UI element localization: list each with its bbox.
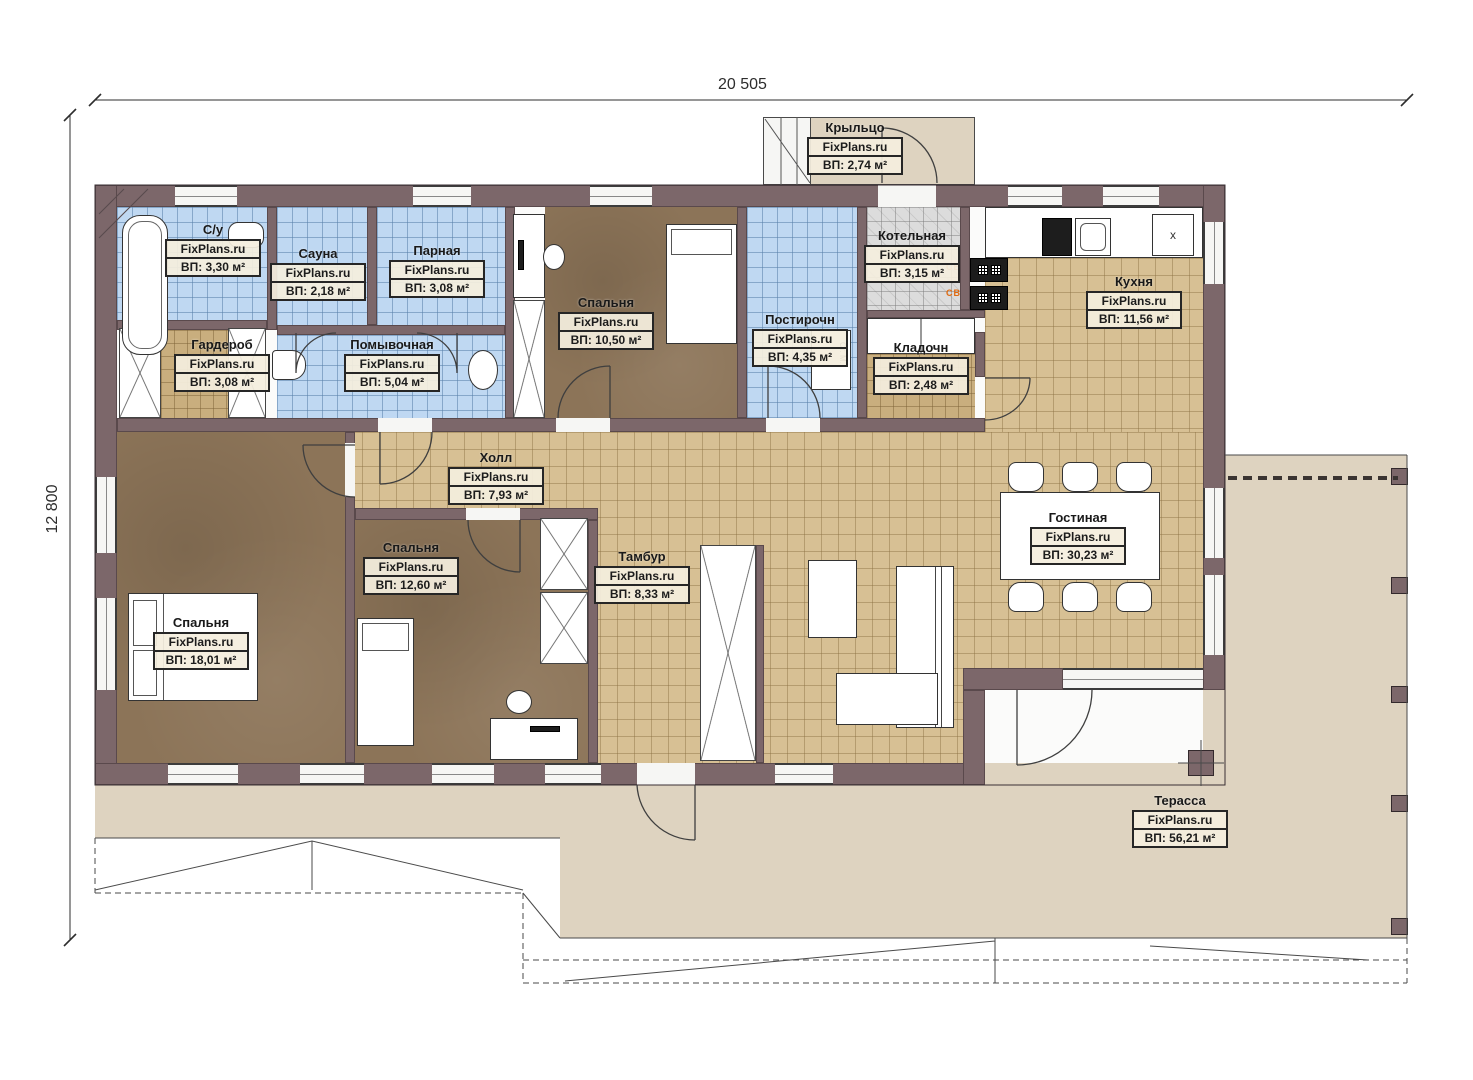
window-top-5 xyxy=(1103,185,1159,207)
wall-boiler-bottom xyxy=(867,310,985,318)
watermark: FixPlans.ru xyxy=(176,356,268,374)
dining-chair-4 xyxy=(1008,582,1044,612)
window-bottom-1 xyxy=(168,763,238,785)
floor-plan: Ст. М. СВ СВ x xyxy=(0,0,1473,1080)
room-name: Кладочн xyxy=(894,340,949,355)
terrace-post-1 xyxy=(1391,468,1408,485)
room-name: Холл xyxy=(480,450,513,465)
room-name: Гардероб xyxy=(191,337,252,352)
watermark: FixPlans.ru xyxy=(155,634,247,652)
window-bottom-4 xyxy=(545,763,601,785)
stove-burners-1 xyxy=(970,258,1008,282)
dining-chair-3 xyxy=(1116,462,1152,492)
room-label-tambur: Тамбур FixPlans.ru ВП: 8,33 м² xyxy=(582,549,702,604)
window-right-2 xyxy=(1203,488,1225,558)
watermark: FixPlans.ru xyxy=(809,139,901,157)
room-label-kholl: Холл FixPlans.ru ВП: 7,93 м² xyxy=(436,450,556,505)
room-label-parnaya: Парная FixPlans.ru ВП: 3,08 м² xyxy=(377,243,497,298)
watermark: FixPlans.ru xyxy=(875,359,967,377)
terrace-column xyxy=(1188,750,1214,776)
terrace-sliding-door xyxy=(1063,668,1203,690)
watermark: FixPlans.ru xyxy=(1032,529,1124,547)
room-name: Парная xyxy=(413,243,460,258)
room-label-kryltso: Крыльцо FixPlans.ru ВП: 2,74 м² xyxy=(795,120,915,175)
room-label-gostinaya: Гостиная FixPlans.ru ВП: 30,23 м² xyxy=(1018,510,1138,565)
terrace-post-5 xyxy=(1391,918,1408,935)
room-info-box: FixPlans.ru ВП: 2,48 м² xyxy=(873,357,969,395)
room-name: Помывочная xyxy=(350,337,433,352)
bedroom2-pillow xyxy=(362,623,409,651)
terrace-post-4 xyxy=(1391,795,1408,812)
window-top-1 xyxy=(175,185,237,207)
room-label-garderob: Гардероб FixPlans.ru ВП: 3,08 м² xyxy=(162,337,282,392)
terrace-post-2 xyxy=(1391,577,1408,594)
room-name: Спальня xyxy=(173,615,229,630)
tambur-closet xyxy=(700,545,756,761)
watermark: FixPlans.ru xyxy=(365,559,457,577)
bedroom2-closet-1 xyxy=(540,518,588,590)
room-info-box: FixPlans.ru ВП: 10,50 м² xyxy=(558,312,654,350)
room-area: ВП: 3,30 м² xyxy=(167,259,259,275)
room-label-spalnya-3: Спальня FixPlans.ru ВП: 18,01 м² xyxy=(141,615,261,670)
kitchen-sink-basin xyxy=(1080,223,1106,251)
room-info-box: FixPlans.ru ВП: 18,01 м² xyxy=(153,632,249,670)
coffee-table xyxy=(808,560,857,638)
room-name: Постирочн xyxy=(765,312,835,327)
room-area: ВП: 2,18 м² xyxy=(272,283,364,299)
window-left-1 xyxy=(95,477,117,553)
watermark: FixPlans.ru xyxy=(391,262,483,280)
watermark: FixPlans.ru xyxy=(450,469,542,487)
watermark: FixPlans.ru xyxy=(167,241,259,259)
dining-chair-5 xyxy=(1062,582,1098,612)
terrace-apron-left xyxy=(95,785,985,838)
wall-wet-row xyxy=(277,325,505,335)
room-info-box: FixPlans.ru ВП: 3,30 м² xyxy=(165,239,261,277)
room-area: ВП: 7,93 м² xyxy=(450,487,542,503)
bedroom2-desk xyxy=(490,718,578,760)
entrance-door-opening xyxy=(878,185,936,207)
room-info-box: FixPlans.ru ВП: 2,74 м² xyxy=(807,137,903,175)
window-top-3 xyxy=(590,185,652,207)
room-area: ВП: 12,60 м² xyxy=(365,577,457,593)
watermark: FixPlans.ru xyxy=(1134,812,1226,830)
room-info-box: FixPlans.ru ВП: 4,35 м² xyxy=(752,329,848,367)
dining-chair-6 xyxy=(1116,582,1152,612)
bedroom1-closet xyxy=(513,300,545,418)
room-area: ВП: 3,08 м² xyxy=(391,280,483,296)
room-info-box: FixPlans.ru ВП: 56,21 м² xyxy=(1132,810,1228,848)
room-info-box: FixPlans.ru ВП: 3,08 м² xyxy=(389,260,485,298)
room-label-kukhnya: Кухня FixPlans.ru ВП: 11,56 м² xyxy=(1074,274,1194,329)
room-area: ВП: 4,35 м² xyxy=(754,349,846,365)
bedroom1-chair xyxy=(543,244,565,270)
bedroom3-door-opening xyxy=(345,443,355,497)
room-info-box: FixPlans.ru ВП: 30,23 м² xyxy=(1030,527,1126,565)
room-area: ВП: 18,01 м² xyxy=(155,652,247,668)
terrace-apron-bottom xyxy=(560,838,985,938)
bedroom2-monitor xyxy=(530,726,560,732)
window-right-1 xyxy=(1203,222,1225,284)
watermark: FixPlans.ru xyxy=(1088,293,1180,311)
room-name: Котельная xyxy=(878,228,946,243)
room-info-box: FixPlans.ru ВП: 2,18 м² xyxy=(270,263,366,301)
room-area: ВП: 2,74 м² xyxy=(809,157,901,173)
room-name: Терасса xyxy=(1154,793,1206,808)
window-top-4 xyxy=(1008,185,1062,207)
sofa-seat xyxy=(836,673,938,725)
room-name: Спальня xyxy=(383,540,439,555)
room-name: Спальня xyxy=(578,295,634,310)
room-info-box: FixPlans.ru ВП: 11,56 м² xyxy=(1086,291,1182,329)
room-name: Гостиная xyxy=(1049,510,1108,525)
room-label-terassa: Терасса FixPlans.ru ВП: 56,21 м² xyxy=(1120,793,1240,848)
window-left-2 xyxy=(95,598,117,690)
room-area: ВП: 8,33 м² xyxy=(596,586,688,602)
room-info-box: FixPlans.ru ВП: 3,15 м² xyxy=(864,245,960,283)
room-label-spalnya-1: Спальня FixPlans.ru ВП: 10,50 м² xyxy=(546,295,666,350)
stove-burners-2 xyxy=(970,286,1008,310)
room-label-kladochn: Кладочн FixPlans.ru ВП: 2,48 м² xyxy=(861,340,981,395)
room-name: С/у xyxy=(203,222,223,237)
dimension-width: 20 505 xyxy=(718,76,767,94)
stove-display-2: СВ xyxy=(946,288,961,298)
dining-chair-1 xyxy=(1008,462,1044,492)
room-info-box: FixPlans.ru ВП: 3,08 м² xyxy=(174,354,270,392)
wall-tambur-right xyxy=(756,545,764,763)
room-info-box: FixPlans.ru ВП: 12,60 м² xyxy=(363,557,459,595)
room-info-box: FixPlans.ru ВП: 7,93 м² xyxy=(448,467,544,505)
room-info-box: FixPlans.ru ВП: 5,04 м² xyxy=(344,354,440,392)
kitchen-sink xyxy=(1075,218,1111,256)
washroom-door-opening xyxy=(378,418,432,432)
room-area: ВП: 3,08 м² xyxy=(176,374,268,390)
room-area: ВП: 3,15 м² xyxy=(866,265,958,281)
terrace-post-3 xyxy=(1391,686,1408,703)
room-info-box: FixPlans.ru ВП: 8,33 м² xyxy=(594,566,690,604)
window-bottom-2 xyxy=(300,763,364,785)
laundry-door-opening xyxy=(766,418,820,432)
room-label-postirochn: Постирочн FixPlans.ru ВП: 4,35 м² xyxy=(740,312,860,367)
wall-hall xyxy=(117,418,985,432)
room-label-kotelnaya: Котельная FixPlans.ru ВП: 3,15 м² xyxy=(852,228,972,283)
dimension-height: 12 800 xyxy=(44,474,62,544)
room-label-spalnya-2: Спальня FixPlans.ru ВП: 12,60 м² xyxy=(351,540,471,595)
window-bottom-3 xyxy=(432,763,494,785)
room-name: Крыльцо xyxy=(825,120,884,135)
watermark: FixPlans.ru xyxy=(272,265,364,283)
watermark: FixPlans.ru xyxy=(596,568,688,586)
watermark: FixPlans.ru xyxy=(346,356,438,374)
washroom-sink xyxy=(468,350,498,390)
bedroom1-pillow xyxy=(671,229,732,255)
dining-chair-2 xyxy=(1062,462,1098,492)
window-top-2 xyxy=(413,185,471,207)
room-label-sauna: Сауна FixPlans.ru ВП: 2,18 м² xyxy=(258,246,378,301)
wall-step-horizontal xyxy=(963,668,1063,690)
watermark: FixPlans.ru xyxy=(754,331,846,349)
bedroom2-bed xyxy=(357,618,414,746)
room-name: Тамбур xyxy=(618,549,665,564)
room-name: Кухня xyxy=(1115,274,1153,289)
bedroom1-door-opening xyxy=(556,418,610,432)
room-label-pomyvochnaya: Помывочная FixPlans.ru ВП: 5,04 м² xyxy=(332,337,452,392)
room-area: ВП: 11,56 м² xyxy=(1088,311,1180,327)
kitchen-fridge: x xyxy=(1152,214,1194,256)
window-bottom-5 xyxy=(775,763,833,785)
room-area: ВП: 5,04 м² xyxy=(346,374,438,390)
kitchen-cooktop xyxy=(1042,218,1072,256)
watermark: FixPlans.ru xyxy=(866,247,958,265)
bedroom1-monitor xyxy=(518,240,524,270)
bedroom1-bed xyxy=(666,224,737,344)
bedroom2-chair xyxy=(506,690,532,714)
room-label-su: С/у FixPlans.ru ВП: 3,30 м² xyxy=(153,222,273,277)
window-right-3 xyxy=(1203,575,1225,655)
watermark: FixPlans.ru xyxy=(560,314,652,332)
tambur-exit-opening xyxy=(637,763,695,785)
room-area: ВП: 30,23 м² xyxy=(1032,547,1124,563)
room-area: ВП: 56,21 м² xyxy=(1134,830,1226,846)
bedroom2-closet-2 xyxy=(540,592,588,664)
bedroom2-door-opening xyxy=(466,508,520,520)
room-area: ВП: 10,50 м² xyxy=(560,332,652,348)
room-name: Сауна xyxy=(298,246,337,261)
wall-step-vertical xyxy=(963,690,985,785)
room-area: ВП: 2,48 м² xyxy=(875,377,967,393)
